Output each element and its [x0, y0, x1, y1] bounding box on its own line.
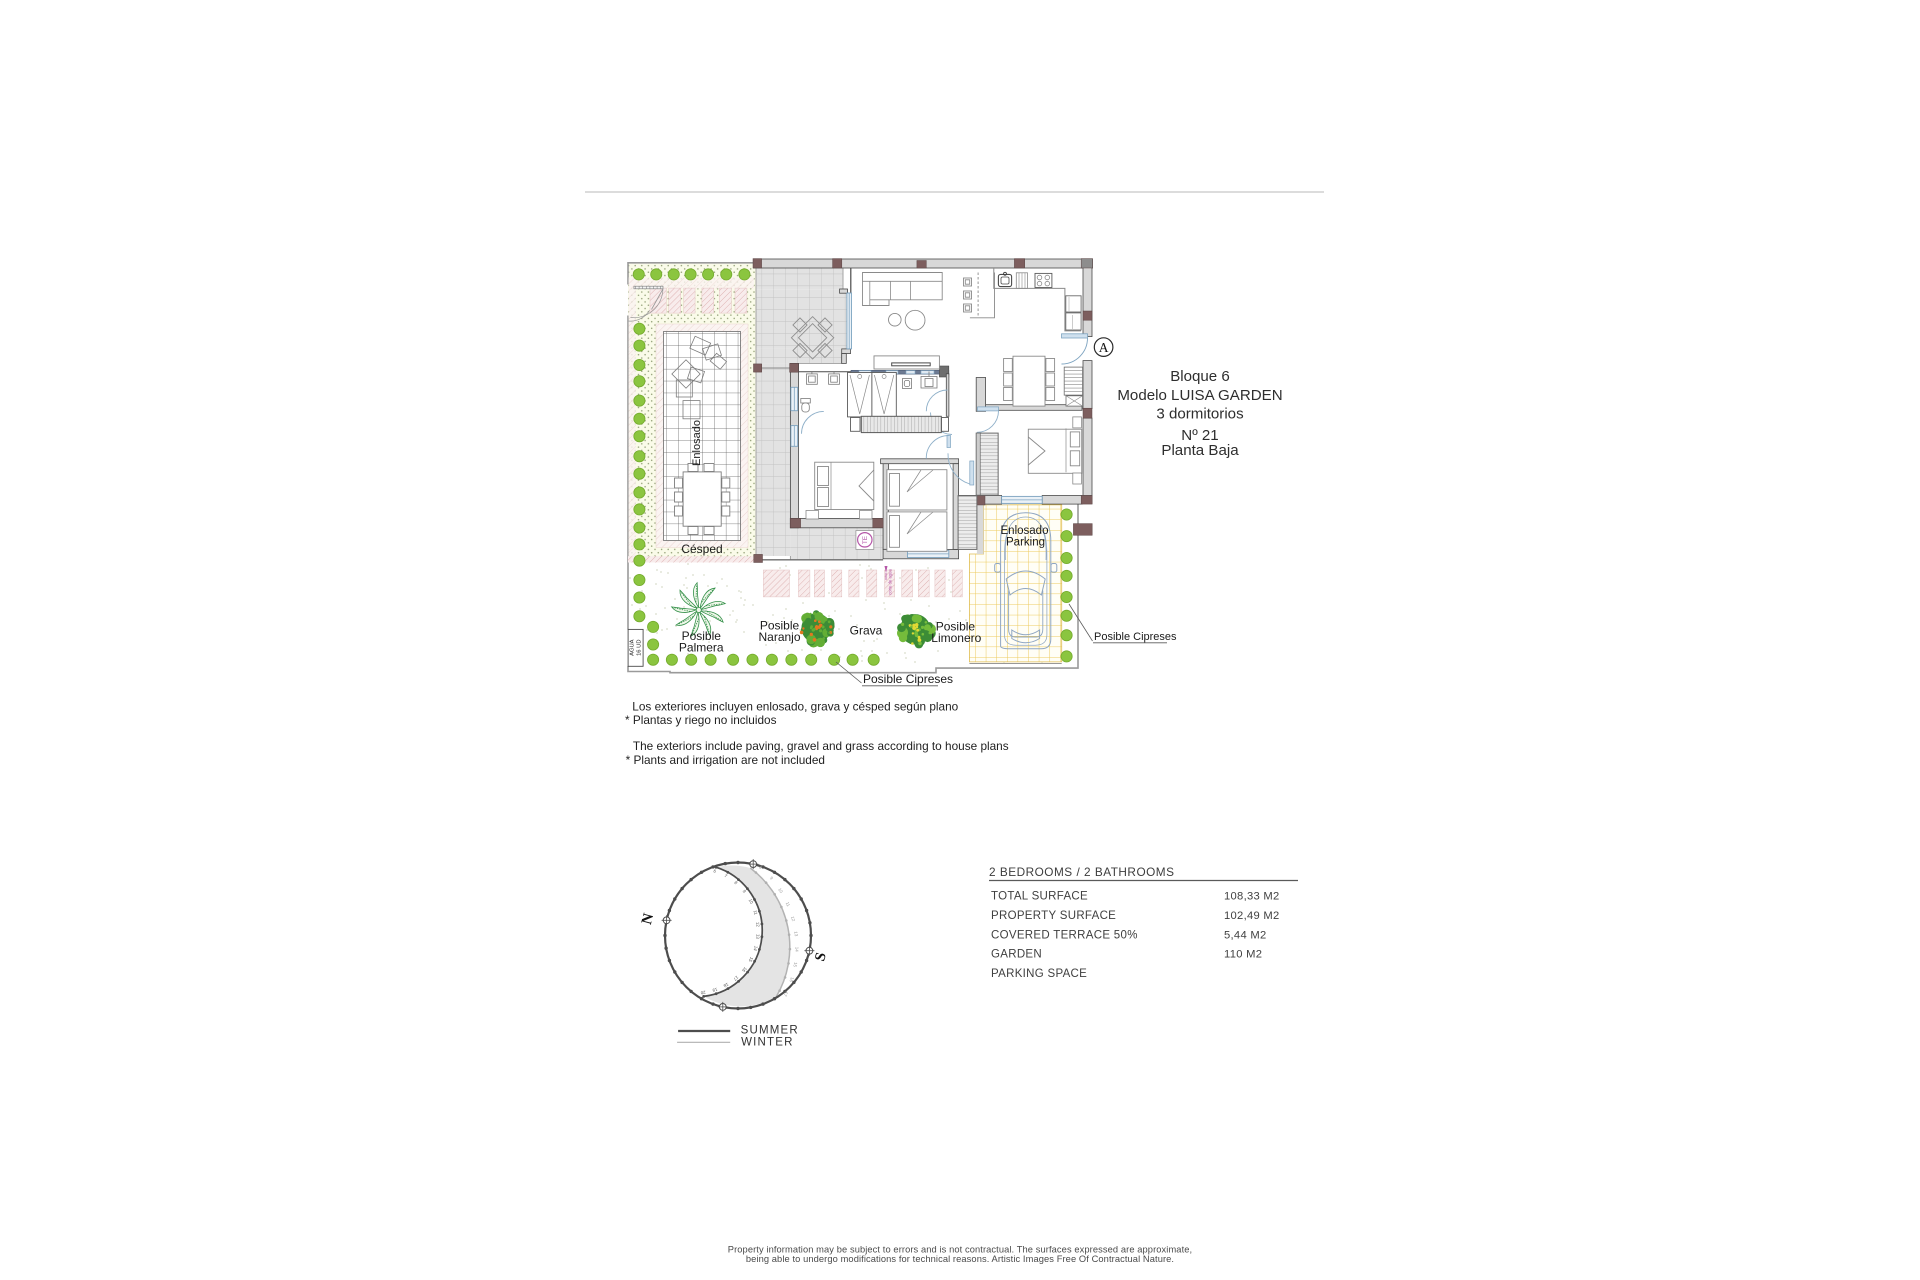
svg-text:7: 7	[724, 873, 729, 879]
svg-text:Bloque 6: Bloque 6	[1170, 368, 1230, 385]
svg-text:13: 13	[755, 934, 760, 940]
svg-text:15: 15	[747, 956, 754, 963]
svg-text:Grava: Grava	[850, 624, 883, 638]
svg-text:COVERED TERRACE 50%: COVERED TERRACE 50%	[991, 929, 1138, 941]
svg-text:* Plantas y riego no incluidos: * Plantas y riego no incluidos	[625, 713, 777, 727]
svg-text:Parking: Parking	[1006, 537, 1045, 549]
svg-text:A: A	[1099, 340, 1109, 355]
svg-text:16: 16	[788, 976, 794, 983]
svg-text:3 dormitorios: 3 dormitorios	[1156, 406, 1243, 423]
svg-text:10: 10	[748, 898, 755, 905]
svg-text:2 BEDROOMS / 2 BATHROOMS: 2 BEDROOMS / 2 BATHROOMS	[989, 865, 1175, 879]
svg-text:18: 18	[722, 982, 729, 989]
svg-text:Césped: Césped	[681, 542, 722, 556]
svg-text:9: 9	[742, 889, 748, 894]
svg-text:SUMMER: SUMMER	[741, 1024, 799, 1036]
svg-text:11: 11	[752, 910, 758, 916]
svg-text:Limonero: Limonero	[931, 631, 981, 645]
svg-text:PARKING SPACE: PARKING SPACE	[991, 968, 1087, 980]
svg-text:5,44 M2: 5,44 M2	[1224, 929, 1267, 941]
svg-text:GARDEN: GARDEN	[991, 949, 1042, 961]
svg-text:15: 15	[792, 962, 798, 968]
svg-text:WINTER: WINTER	[741, 1036, 794, 1048]
svg-text:12: 12	[755, 922, 761, 928]
svg-text:8: 8	[733, 880, 739, 886]
svg-text:Posible Cipreses: Posible Cipreses	[863, 672, 953, 686]
svg-text:12: 12	[790, 916, 796, 923]
svg-text:Enlosado: Enlosado	[691, 420, 703, 466]
svg-text:Modelo LUISA GARDEN: Modelo LUISA GARDEN	[1117, 387, 1282, 404]
svg-text:10: 10	[777, 887, 784, 894]
svg-text:Planta Baja: Planta Baja	[1161, 442, 1239, 459]
svg-text:N: N	[639, 912, 657, 927]
svg-text:Posible Cipreses: Posible Cipreses	[1094, 631, 1177, 643]
svg-text:6: 6	[713, 868, 717, 874]
svg-text:TOTAL SURFACE: TOTAL SURFACE	[991, 891, 1088, 903]
svg-text:The exteriors include paving,: The exteriors include paving, gravel and…	[633, 739, 1009, 753]
svg-text:Naranjo: Naranjo	[758, 630, 800, 644]
svg-text:TE: TE	[862, 535, 869, 544]
svg-text:19: 19	[711, 987, 718, 993]
svg-text:S: S	[812, 951, 830, 963]
svg-text:20: 20	[700, 990, 706, 996]
svg-text:PROPERTY SURFACE: PROPERTY SURFACE	[991, 910, 1116, 922]
svg-text:108,33 M2: 108,33 M2	[1224, 891, 1280, 903]
svg-text:14: 14	[794, 947, 799, 953]
svg-text:AGUA: AGUA	[630, 639, 636, 656]
svg-text:Palmera: Palmera	[679, 641, 724, 655]
svg-text:corte de agua: corte de agua	[888, 569, 893, 595]
svg-text:102,49 M2: 102,49 M2	[1224, 910, 1280, 922]
svg-text:16 UD: 16 UD	[637, 639, 643, 655]
svg-text:being able to undergo modifica: being able to undergo modifications for …	[746, 1254, 1174, 1264]
svg-text:110 M2: 110 M2	[1224, 949, 1262, 961]
svg-text:Enlosado: Enlosado	[1001, 525, 1049, 537]
svg-text:9: 9	[769, 876, 775, 882]
svg-text:* Plants and irrigation are no: * Plants and irrigation are not included	[626, 753, 825, 767]
svg-text:13: 13	[793, 931, 799, 937]
svg-text:11: 11	[785, 901, 792, 908]
svg-text:Los exteriores incluyen enlosa: Los exteriores incluyen enlosado, grava …	[632, 700, 958, 714]
svg-text:14: 14	[752, 945, 758, 952]
